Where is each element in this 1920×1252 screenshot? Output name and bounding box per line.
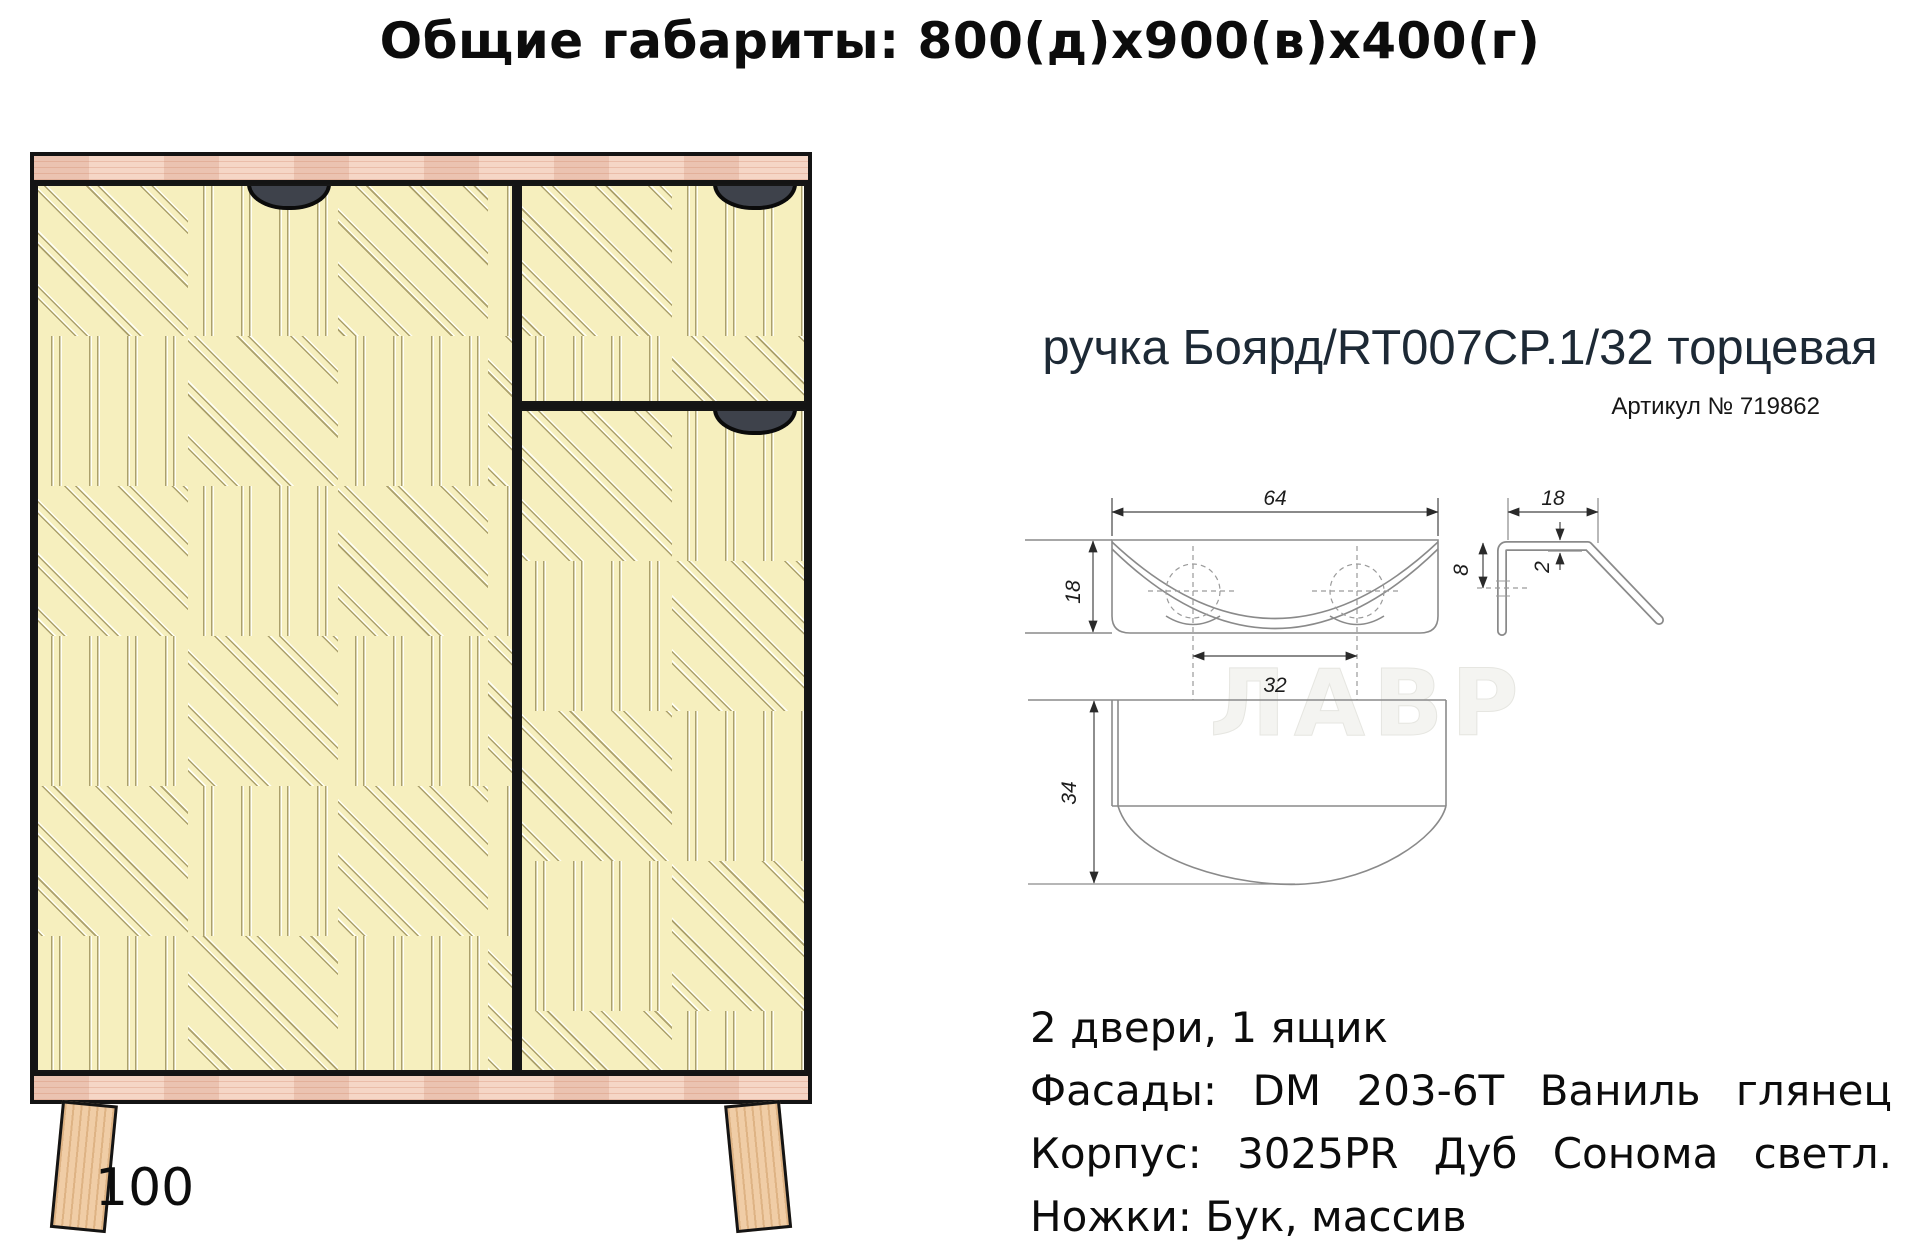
cabinet-drawing	[30, 152, 812, 1104]
spec-carcass: Корпус: 3025PR Дуб Сонома светл.	[1030, 1122, 1892, 1185]
spec-legs: Ножки: Бук, массив	[1030, 1185, 1892, 1248]
handle-side-view	[1477, 546, 1659, 631]
page-title: Общие габариты: 800(д)х900(в)х400(г)	[0, 12, 1920, 70]
dim-depth: 34	[1058, 781, 1081, 804]
spec-facades: Фасады: DM 203-6T Ваниль глянец	[1030, 1059, 1892, 1122]
facade-pattern-diagonal	[522, 186, 804, 401]
handle-front-view	[1025, 540, 1438, 633]
cabinet-right-leg	[724, 1100, 792, 1233]
dim-top-width: 18	[1541, 487, 1565, 510]
cabinet-bottom-panel	[34, 1076, 808, 1100]
facade-pattern-diagonal	[522, 411, 804, 1070]
dim-hole-spacing: 32	[1263, 674, 1287, 697]
handle-technical-drawing: ЛАВР 64 18 32	[1000, 440, 1920, 900]
cabinet-drawer-front	[520, 184, 806, 403]
cabinet-left-door	[36, 184, 514, 1072]
dim-hole-offset: 8	[1450, 564, 1473, 576]
handle-title: ручка Боярд/RT007CP.1/32 торцевая	[1005, 320, 1915, 376]
leg-height-label: 100	[95, 1158, 194, 1218]
facade-pattern-diagonal	[38, 186, 512, 1070]
dim-front-width: 64	[1263, 487, 1286, 510]
spec-lines: 2 двери, 1 ящик Фасады: DM 203-6T Ваниль…	[1030, 996, 1892, 1248]
dim-front-height: 18	[1062, 580, 1085, 604]
spec-doors-count: 2 двери, 1 ящик	[1030, 996, 1892, 1059]
furniture-spec-sheet: Общие габариты: 800(д)х900(в)х400(г) 100…	[0, 0, 1920, 1252]
dim-thickness: 2	[1531, 561, 1554, 574]
cabinet-right-door	[520, 409, 806, 1072]
cabinet-top-panel	[34, 156, 808, 180]
watermark: ЛАВР	[1209, 650, 1526, 757]
article-number: Артикул № 719862	[1420, 393, 1820, 421]
